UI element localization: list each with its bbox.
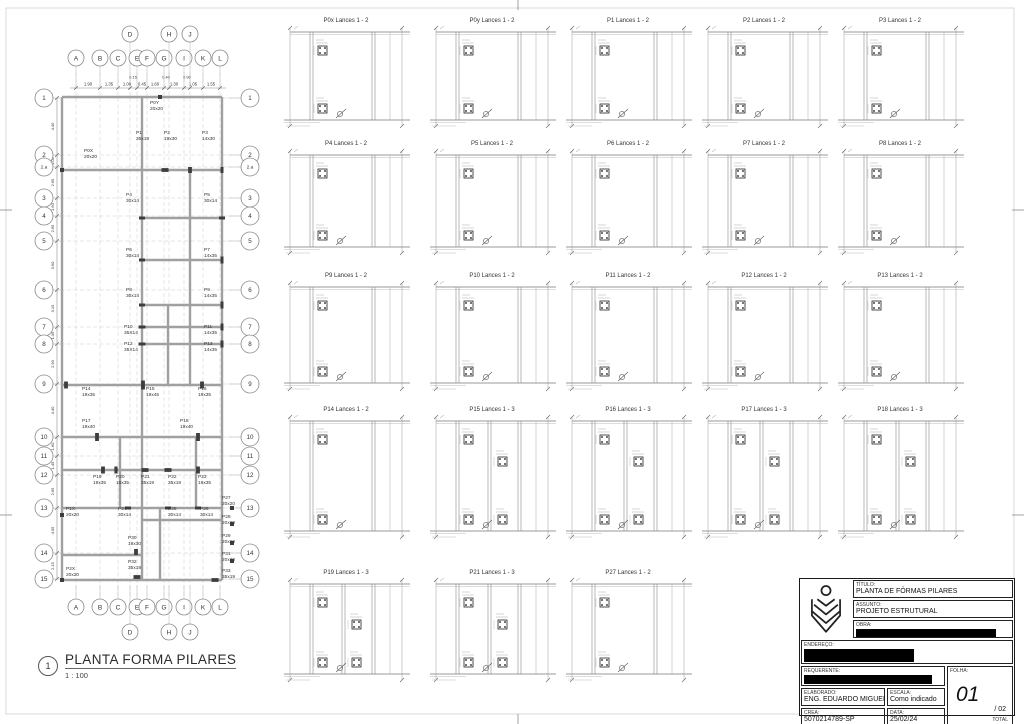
grid-bubble-label: 8	[42, 341, 46, 348]
rebar-dot	[742, 105, 744, 107]
rebar-dot	[878, 237, 880, 239]
rebar-section	[318, 515, 327, 524]
grid-bubble-label: 15	[41, 576, 48, 583]
rebar-dot	[324, 52, 326, 54]
rebar-section	[464, 598, 473, 607]
rebar-dot	[873, 105, 875, 107]
rebar-dot	[470, 237, 472, 239]
rebar-dot	[470, 52, 472, 54]
detail-glyph	[482, 372, 492, 381]
grid-bubble-label: 10	[247, 434, 254, 441]
rebar-dot	[737, 373, 739, 375]
column-size: 35x19	[128, 565, 141, 571]
annotation-mark	[576, 281, 580, 284]
rebar-dot	[737, 302, 739, 304]
rebar-dot	[737, 175, 739, 177]
rebar-section	[634, 457, 643, 466]
dim-value: 2.65	[50, 178, 55, 187]
rebar-section	[600, 515, 609, 524]
column-size: 20x20	[222, 557, 235, 563]
panel-title: P5 Lances 1 - 2	[471, 141, 514, 147]
rebar-dot	[640, 521, 642, 523]
rebar-dot	[470, 110, 472, 112]
rebar-dot	[601, 105, 603, 107]
redacted-obra-value	[856, 629, 996, 637]
column-label: P11	[204, 324, 213, 330]
annotation-mark	[294, 281, 298, 284]
rebar-dot	[606, 237, 608, 239]
field-endereco-label: ENDEREÇO:	[804, 642, 1010, 648]
grid-bubble-label: 12	[247, 472, 254, 479]
panel-P16: P16 Lances 1 - 3	[566, 407, 692, 539]
panel-title: P12 Lances 1 - 2	[741, 273, 787, 279]
rebar-section	[736, 169, 745, 178]
rebar-dot	[606, 307, 608, 309]
column-mark-P4	[139, 217, 145, 220]
rebar-section	[464, 367, 473, 376]
column-label: P14	[82, 386, 91, 392]
field-elaborado: ELABORADO: ENG. EDUARDO MIGUEL	[801, 688, 885, 706]
column-label: P17	[82, 418, 91, 424]
rebar-dot	[465, 368, 467, 370]
rebar-dot	[606, 47, 608, 49]
column-mark-P19	[101, 467, 105, 474]
rebar-dot	[878, 441, 880, 443]
rebar-section	[464, 169, 473, 178]
grid-bubble-label: C	[116, 55, 121, 62]
rebar-dot	[470, 599, 472, 601]
rebar-dot	[324, 368, 326, 370]
dim-value: 4.05	[50, 526, 55, 535]
rebar-dot	[606, 170, 608, 172]
rebar-dot	[873, 302, 875, 304]
grid-bubble-label: G	[161, 604, 166, 611]
rebar-section	[318, 301, 327, 310]
field-crea-value: 5070214789-SP	[804, 716, 882, 724]
grid-bubble-label: H	[167, 31, 172, 38]
grid-bubble-label: 13	[247, 505, 254, 512]
column-mark-P7	[221, 257, 224, 264]
panel-title: P21 Lances 1 - 3	[469, 570, 515, 576]
rebar-dot	[742, 521, 744, 523]
column-label: P28	[222, 514, 231, 520]
detail-glyph	[618, 372, 628, 381]
field-escala-value: Como indicado	[890, 696, 942, 704]
rebar-dot	[465, 604, 467, 606]
total-label: TOTAL	[992, 717, 1008, 723]
column-label: P27	[222, 495, 231, 501]
dim-value: 2.65	[50, 487, 55, 496]
grid-bubble-label: 10	[41, 434, 48, 441]
rebar-dot	[319, 47, 321, 49]
annotation-mark	[294, 578, 298, 581]
annotation-mark	[712, 415, 716, 418]
rebar-dot	[499, 659, 501, 661]
column-label: P23	[198, 474, 207, 480]
panel-P11: P11 Lances 1 - 2	[566, 273, 692, 391]
rebar-section	[736, 515, 745, 524]
column-mark-P6	[139, 259, 145, 262]
rebar-section	[736, 46, 745, 55]
rebar-dot	[499, 463, 501, 465]
field-endereco: ENDEREÇO:	[801, 640, 1013, 664]
rebar-section	[464, 46, 473, 55]
rebar-dot	[470, 516, 472, 518]
grid-bubble-label: 3	[248, 195, 252, 202]
rebar-dot	[470, 664, 472, 666]
grid-bubble-label: F	[145, 604, 149, 611]
rebar-dot	[324, 302, 326, 304]
column-size: 14x35	[204, 347, 217, 353]
rebar-dot	[319, 105, 321, 107]
rebar-dot	[470, 232, 472, 234]
rebar-dot	[324, 232, 326, 234]
rebar-dot	[907, 521, 909, 523]
detail-glyph	[482, 236, 492, 245]
grid-bubble-label: G	[161, 55, 166, 62]
rebar-dot	[465, 441, 467, 443]
dim-value: 0.45	[138, 82, 147, 87]
rebar-dot	[601, 237, 603, 239]
rebar-dot	[873, 47, 875, 49]
rebar-section	[600, 46, 609, 55]
annotation-mark	[294, 149, 298, 152]
rebar-section	[872, 169, 881, 178]
column-size: 35X14	[124, 330, 138, 336]
rebar-dot	[606, 110, 608, 112]
field-obra-label: OBRA:	[856, 622, 1010, 628]
column-mark-P14	[64, 382, 68, 389]
rebar-dot	[742, 237, 744, 239]
rebar-dot	[737, 521, 739, 523]
rebar-dot	[504, 516, 506, 518]
dim-value: 1.90	[84, 82, 93, 87]
column-size: 35x19	[222, 574, 235, 580]
column-size: 19x45	[146, 392, 159, 398]
rebar-section	[318, 169, 327, 178]
rebar-section	[906, 515, 915, 524]
rebar-dot	[742, 516, 744, 518]
rebar-dot	[324, 664, 326, 666]
rebar-dot	[878, 170, 880, 172]
detail-glyph	[482, 520, 492, 529]
grid-bubble-label: 5	[42, 238, 46, 245]
rebar-dot	[640, 458, 642, 460]
rebar-section	[464, 435, 473, 444]
rebar-dot	[358, 659, 360, 661]
column-label: P18	[180, 418, 189, 424]
field-assunto: ASSUNTO: PROJETO ESTRUTURAL	[853, 600, 1013, 618]
column-size: 30x14	[200, 512, 213, 518]
panel-title: P13 Lances 1 - 2	[877, 273, 923, 279]
detail-glyph	[618, 520, 628, 529]
rebar-dot	[737, 52, 739, 54]
rebar-dot	[601, 47, 603, 49]
rebar-dot	[912, 521, 914, 523]
panel-title: P1 Lances 1 - 2	[607, 18, 650, 24]
rebar-dot	[776, 463, 778, 465]
rebar-dot	[324, 436, 326, 438]
column-mark-P3	[221, 167, 224, 173]
grid-bubble-label: D	[128, 629, 133, 636]
rebar-section	[464, 515, 473, 524]
column-mark-P2	[188, 167, 192, 173]
column-label: P29	[222, 533, 231, 539]
rebar-dot	[319, 516, 321, 518]
rebar-section	[872, 367, 881, 376]
panel-title: P17 Lances 1 - 3	[741, 407, 787, 413]
rebar-dot	[878, 110, 880, 112]
panel-P17: P17 Lances 1 - 3	[702, 407, 828, 539]
rebar-section	[872, 435, 881, 444]
rebar-dot	[606, 664, 608, 666]
column-label: P32	[128, 559, 137, 565]
rebar-dot	[878, 436, 880, 438]
floor-plan: 1.901.351.000.451.601.301.051.550.150.40…	[35, 26, 259, 640]
dim-value: 3.15	[50, 304, 55, 313]
rebar-dot	[324, 170, 326, 172]
detail-glyph	[618, 109, 628, 118]
column-mark-P0Y	[158, 95, 162, 99]
grid-bubble-label: B	[98, 604, 102, 611]
rebar-dot	[465, 170, 467, 172]
rebar-dot	[499, 664, 501, 666]
rebar-section	[498, 515, 507, 524]
dim-value-small: 0.15	[129, 75, 138, 80]
panel-P13: P13 Lances 1 - 2	[838, 273, 964, 391]
rebar-section	[464, 231, 473, 240]
grid-bubble-label: A	[74, 604, 79, 611]
rebar-dot	[504, 463, 506, 465]
grid-bubble-label: 9	[248, 381, 252, 388]
rebar-dot	[907, 516, 909, 518]
panel-title: P0x Lances 1 - 2	[323, 18, 369, 24]
rebar-dot	[324, 659, 326, 661]
rebar-dot	[470, 175, 472, 177]
rebar-dot	[737, 237, 739, 239]
rebar-dot	[771, 516, 773, 518]
rebar-dot	[742, 368, 744, 370]
rebar-dot	[878, 232, 880, 234]
grid-bubble-label: 7	[248, 324, 252, 331]
column-label: P2	[164, 130, 170, 136]
panel-title: P14 Lances 1 - 2	[323, 407, 369, 413]
rebar-dot	[873, 52, 875, 54]
rebar-dot	[878, 307, 880, 309]
rebar-dot	[776, 516, 778, 518]
rebar-dot	[606, 441, 608, 443]
rebar-dot	[319, 521, 321, 523]
rebar-section	[318, 598, 327, 607]
column-size: 19x30	[128, 541, 141, 547]
detail-glyph	[336, 109, 346, 118]
detail-glyph	[890, 372, 900, 381]
detail-glyph	[890, 236, 900, 245]
rebar-section	[464, 301, 473, 310]
rebar-dot	[499, 516, 501, 518]
rebar-dot	[470, 170, 472, 172]
rebar-dot	[742, 52, 744, 54]
panel-title: P4 Lances 1 - 2	[325, 141, 368, 147]
column-size: 14x35	[204, 330, 217, 336]
rebar-dot	[601, 170, 603, 172]
rebar-section	[600, 301, 609, 310]
column-label: P12	[124, 341, 133, 347]
rebar-dot	[873, 175, 875, 177]
rebar-dot	[873, 436, 875, 438]
rebar-dot	[324, 237, 326, 239]
column-size: 16x35	[116, 480, 129, 486]
rebar-dot	[737, 110, 739, 112]
rebar-section	[872, 515, 881, 524]
rebar-dot	[465, 373, 467, 375]
rebar-section	[872, 104, 881, 113]
titleblock: TÍTULO: PLANTA DE FÔRMAS PILARES ASSUNTO…	[799, 578, 1015, 716]
rebar-dot	[606, 105, 608, 107]
column-size: 14x30	[202, 136, 215, 142]
rebar-dot	[319, 604, 321, 606]
grid-bubble-label: 4	[42, 213, 46, 220]
rebar-dot	[912, 458, 914, 460]
rebar-dot	[606, 599, 608, 601]
dim-value-small: 0.90	[183, 75, 192, 80]
detail-glyph	[890, 109, 900, 118]
column-size: 19x35	[82, 392, 95, 398]
panel-title: P7 Lances 1 - 2	[743, 141, 786, 147]
rebar-dot	[504, 664, 506, 666]
rebar-dot	[606, 232, 608, 234]
panel-P0x: P0x Lances 1 - 2	[284, 18, 410, 128]
rebar-dot	[737, 368, 739, 370]
rebar-section	[736, 301, 745, 310]
column-label: P6	[126, 247, 132, 253]
plan-scale-text: 1 : 100	[65, 671, 236, 680]
column-label: P26	[200, 506, 209, 512]
rebar-section	[464, 658, 473, 667]
dim-value: 4.40	[50, 406, 55, 415]
rebar-dot	[324, 599, 326, 601]
annotation-mark	[848, 26, 852, 29]
panel-title: P2 Lances 1 - 2	[743, 18, 786, 24]
grid-bubble-label: 6	[248, 287, 252, 294]
rebar-dot	[601, 436, 603, 438]
panel-P1: P1 Lances 1 - 2	[566, 18, 692, 128]
column-label: P0X	[84, 148, 94, 154]
rebar-dot	[504, 659, 506, 661]
column-label: P9	[204, 287, 210, 293]
column-size: 30x14	[168, 512, 181, 518]
annotation-mark	[440, 26, 444, 29]
rebar-dot	[742, 302, 744, 304]
panel-P10: P10 Lances 1 - 2	[430, 273, 556, 391]
panel-title: P15 Lances 1 - 3	[469, 407, 515, 413]
company-logo	[800, 579, 852, 639]
rebar-dot	[606, 436, 608, 438]
rebar-dot	[601, 307, 603, 309]
column-size: 19x35	[198, 480, 211, 486]
rebar-dot	[465, 232, 467, 234]
column-mark-P0X	[60, 168, 64, 172]
field-titulo-value: PLANTA DE FÔRMAS PILARES	[856, 588, 1010, 596]
rebar-dot	[606, 373, 608, 375]
rebar-dot	[504, 626, 506, 628]
rebar-dot	[878, 47, 880, 49]
rebar-dot	[353, 659, 355, 661]
rebar-dot	[742, 373, 744, 375]
rebar-dot	[873, 170, 875, 172]
rebar-dot	[606, 516, 608, 518]
rebar-dot	[465, 175, 467, 177]
rebar-dot	[353, 626, 355, 628]
rebar-dot	[319, 599, 321, 601]
rebar-dot	[601, 302, 603, 304]
rebar-section	[318, 658, 327, 667]
detail-glyph	[754, 109, 764, 118]
rebar-section	[352, 620, 361, 629]
rebar-dot	[742, 47, 744, 49]
grid-bubble-label: L	[218, 604, 222, 611]
detail-glyph	[754, 236, 764, 245]
panel-P6: P6 Lances 1 - 2	[566, 141, 692, 255]
dim-value: 2.90	[50, 359, 55, 368]
column-size: 19x35	[198, 392, 211, 398]
rebar-section	[736, 104, 745, 113]
rebar-dot	[873, 521, 875, 523]
column-label: P5	[204, 192, 210, 198]
rebar-dot	[465, 307, 467, 309]
rebar-dot	[465, 302, 467, 304]
rebar-section	[600, 598, 609, 607]
grid-bubble-label: 2.a	[247, 165, 254, 171]
rebar-dot	[873, 237, 875, 239]
rebar-dot	[912, 516, 914, 518]
panel-title: P9 Lances 1 - 2	[325, 273, 368, 279]
rebar-dot	[470, 368, 472, 370]
detail-glyph	[336, 236, 346, 245]
column-mark-P20	[114, 467, 117, 474]
rebar-dot	[878, 373, 880, 375]
column-label: P4	[126, 192, 132, 198]
rebar-dot	[742, 110, 744, 112]
annotation-mark	[576, 578, 580, 581]
column-mark-P1	[162, 168, 169, 172]
detail-number-bubble: 1	[38, 656, 58, 676]
rebar-section	[634, 515, 643, 524]
rebar-section	[600, 104, 609, 113]
rebar-dot	[601, 175, 603, 177]
rebar-dot	[737, 170, 739, 172]
rebar-dot	[465, 47, 467, 49]
rebar-dot	[319, 436, 321, 438]
grid-bubble-label: 13	[41, 505, 48, 512]
detail-glyph	[754, 520, 764, 529]
panel-P14: P14 Lances 1 - 2	[284, 407, 410, 539]
rebar-dot	[324, 373, 326, 375]
rebar-dot	[737, 436, 739, 438]
detail-glyph	[618, 236, 628, 245]
rebar-dot	[465, 516, 467, 518]
grid-bubble-label: 1	[42, 95, 46, 102]
rebar-dot	[504, 621, 506, 623]
column-size: 35x19	[136, 136, 149, 142]
column-size: 14x35	[204, 293, 217, 299]
rebar-dot	[601, 232, 603, 234]
detail-glyph	[754, 372, 764, 381]
detail-glyph	[482, 663, 492, 672]
panel-title: P27 Lances 1 - 2	[605, 570, 651, 576]
detail-glyph	[336, 663, 346, 672]
rebar-dot	[358, 626, 360, 628]
